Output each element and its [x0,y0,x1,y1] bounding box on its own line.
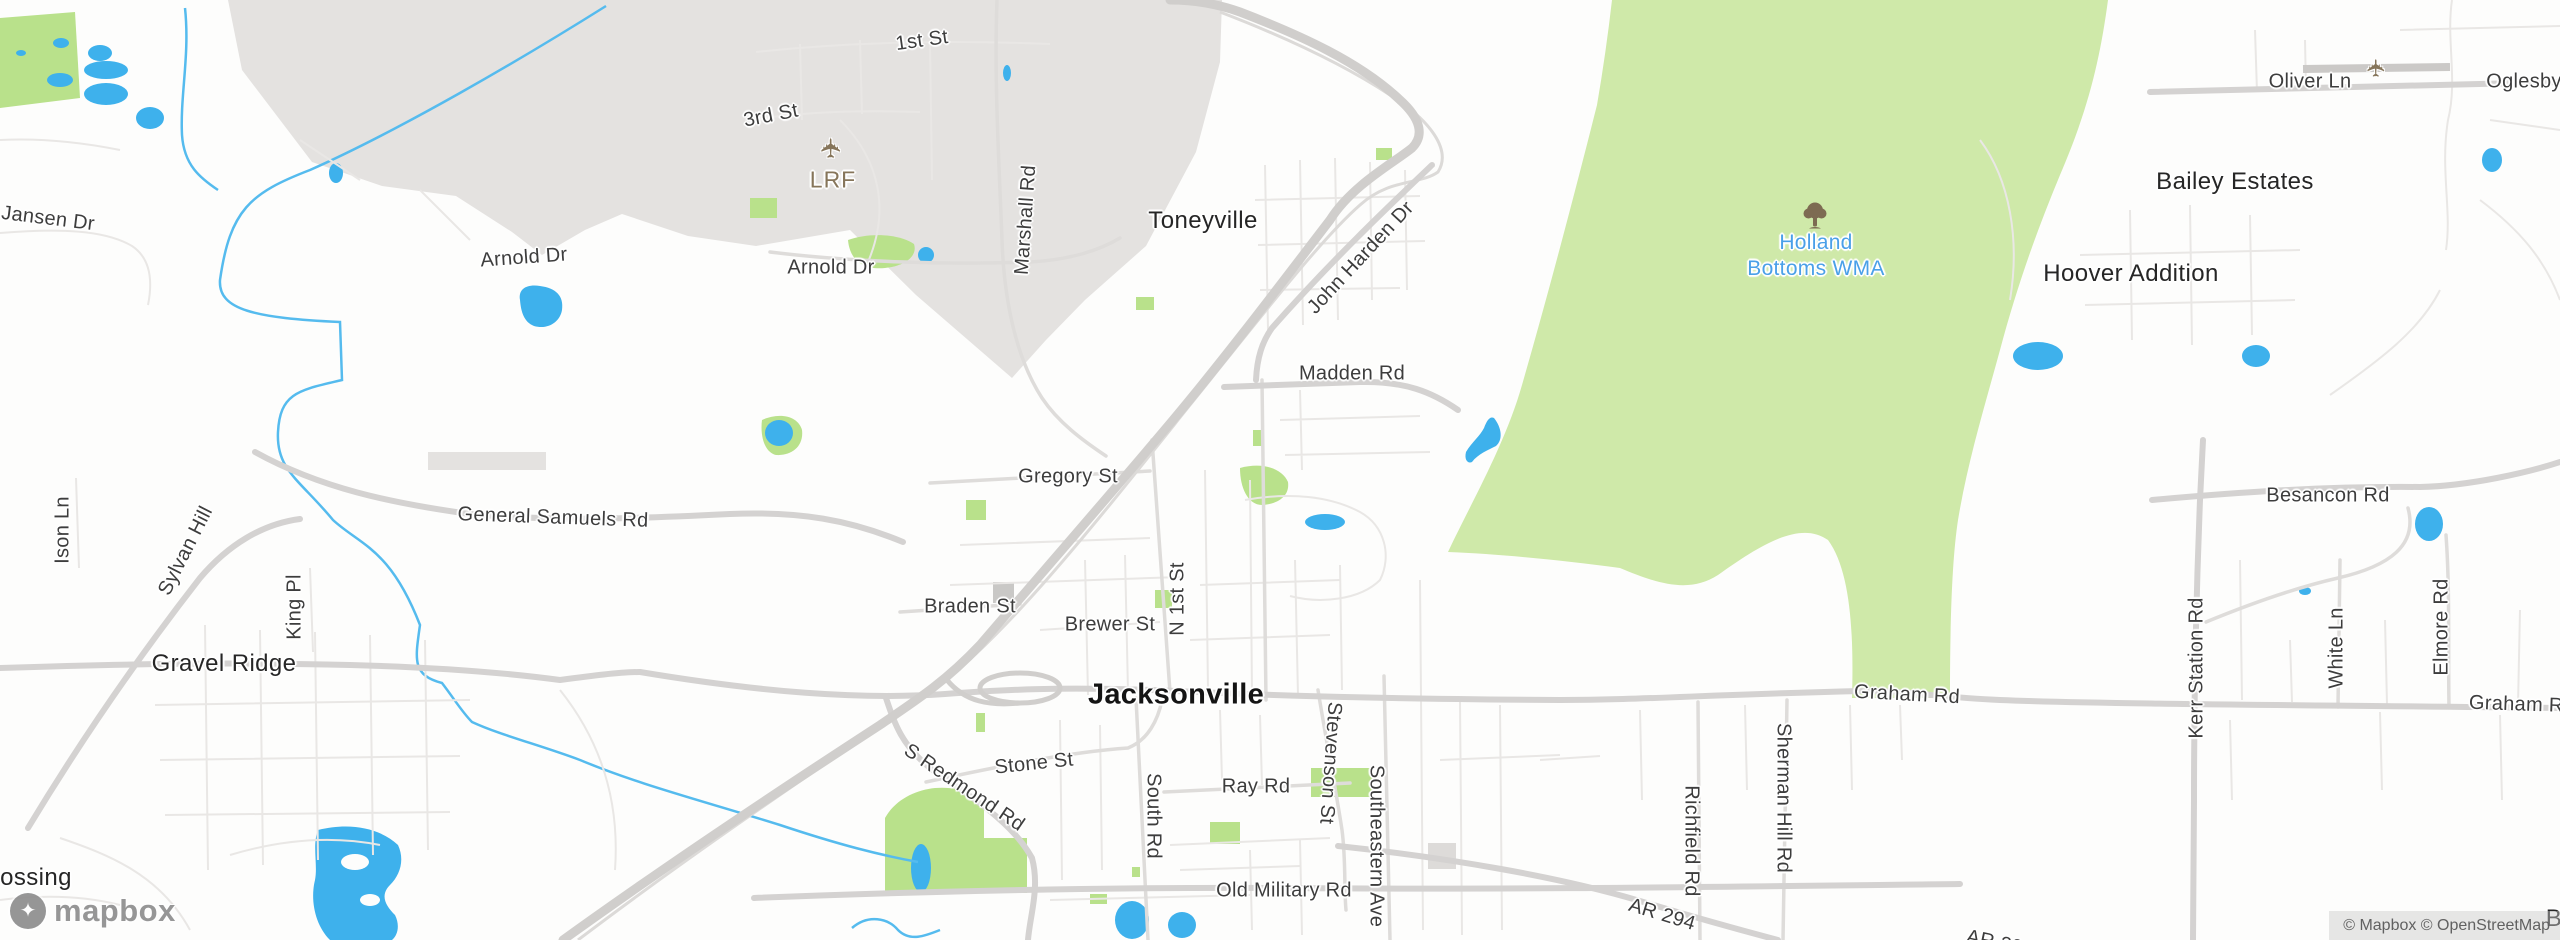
place-label-gravel-ridge: Gravel Ridge [152,650,297,678]
road-label-gregory-st: Gregory St [1018,466,1118,489]
mapbox-logo[interactable]: ✦ mapbox [10,893,176,929]
urban-area [228,0,1456,869]
major-roads [0,82,2560,940]
road-label-white-ln: White Ln [2326,607,2349,688]
place-label-bailey-estates: Bailey Estates [2156,168,2314,196]
road-label-southeastern-ave: Southeastern Ave [1365,765,1388,927]
gravel-ridge-road [0,664,640,680]
place-label-crossing-partial: ossing [0,864,72,892]
road-label-madden-rd: Madden Rd [1299,363,1405,386]
road-label-n-1st-st: N 1st St [1167,562,1190,636]
park-label-holland-line2: Bottoms WMA [1747,256,1884,282]
road-label-kerr-station-rd: Kerr Station Rd [2186,597,2209,738]
road-label-arnold-dr-e: Arnold Dr [787,257,874,280]
road-label-graham-rd-east: Graham Rd [2469,692,2560,719]
airport-icon: ✈ [817,137,848,160]
park-label-holland-line1: Holland [1779,230,1852,256]
attribution[interactable]: © Mapbox © OpenStreetMap [2329,911,2560,940]
airstrip-icon: ✈ [2363,58,2392,78]
wma-area [1448,0,2108,698]
road-label-oliver-ln: Oliver Ln [2269,71,2352,94]
map-canvas[interactable]: ✈ ✈ Jacksonville Toneyville Gravel Ridge… [0,0,2560,940]
road-label-besancon-rd: Besancon Rd [2266,485,2389,508]
map-artwork [0,0,2560,940]
arnold-pond [520,286,563,328]
road-label-richfield-rd: Richfield Rd [1680,785,1703,896]
madden-road [1224,382,1458,410]
road-label-ray-rd: Ray Rd [1222,776,1291,799]
road-label-brewer-st: Brewer St [1065,614,1156,637]
road-label-braden-st: Braden St [924,596,1016,619]
place-label-toneyville: Toneyville [1148,207,1257,235]
road-label-oglesby-rd: Oglesby Rd [2486,71,2560,94]
road-label-south-rd: South Rd [1142,773,1165,859]
ar294-road [1338,846,1778,940]
besancon-curve-road [2206,508,2410,622]
road-label-ison-ln: Ison Ln [52,496,75,564]
city-label-jacksonville: Jacksonville [1088,679,1264,712]
mapbox-logo-icon: ✦ [10,893,46,929]
place-label-hoover-addition: Hoover Addition [2043,260,2218,288]
road-label-king-pl: King Pl [284,574,307,639]
road-label-old-military-rd: Old Military Rd [1216,880,1352,903]
airport-label-lrf: LRF [810,167,856,194]
road-label-elmore-rd: Elmore Rd [2431,578,2454,675]
mapbox-pin-icon: ✦ [20,901,37,921]
bottom-lake [313,826,401,940]
mapbox-wordmark: mapbox [54,893,176,929]
road-label-sherman-hill-rd: Sherman Hill Rd [1772,723,1795,873]
